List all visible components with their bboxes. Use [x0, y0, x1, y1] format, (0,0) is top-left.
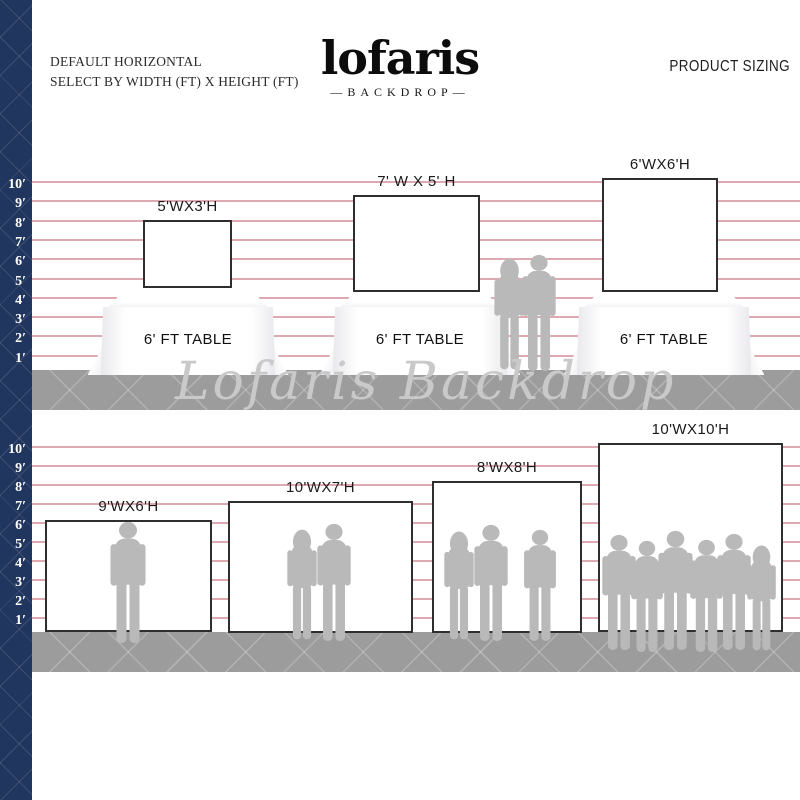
scale-mark-7ft: 7′ — [0, 235, 26, 251]
scale-mark-5ft: 5′ — [0, 274, 26, 290]
person-silhouette — [743, 544, 780, 652]
brand-logo-subtitle: —BACKDROP— — [290, 85, 510, 100]
scale-mark-5ft: 5′ — [0, 537, 26, 553]
backdrop-size-label: 5'WX3'H — [88, 198, 288, 216]
table-size-label: 6' FT TABLE — [101, 331, 276, 348]
brand-logo: lofaris —BACKDROP— — [290, 34, 510, 100]
scale-mark-10ft: 10′ — [0, 177, 26, 193]
backdrop-size-label: 9'WX6'H — [29, 498, 229, 516]
scale-mark-1ft: 1′ — [0, 613, 26, 629]
table-top-surface — [106, 294, 270, 309]
person-silhouette — [313, 523, 355, 641]
backdrop-7x5 — [353, 195, 480, 292]
person-silhouette — [470, 524, 512, 641]
page-title: PRODUCT SIZING — [656, 58, 790, 76]
scale-mark-8ft: 8′ — [0, 480, 26, 496]
scale-mark-7ft: 7′ — [0, 499, 26, 515]
table-top-surface — [582, 294, 746, 309]
scale-mark-10ft: 10′ — [0, 442, 26, 458]
orientation-note-line2: SELECT BY WIDTH (FT) X HEIGHT (FT) — [50, 72, 299, 92]
scale-mark-9ft: 9′ — [0, 196, 26, 212]
lofaris-product-sizing-chart: DEFAULT HORIZONTAL SELECT BY WIDTH (FT) … — [0, 0, 800, 800]
measuring-scale-bar — [0, 0, 32, 800]
scale-mark-8ft: 8′ — [0, 216, 26, 232]
table-size-label: 6' FT TABLE — [333, 331, 508, 348]
scale-mark-6ft: 6′ — [0, 518, 26, 534]
scale-mark-4ft: 4′ — [0, 556, 26, 572]
table-top-surface — [338, 294, 502, 309]
scale-mark-3ft: 3′ — [0, 575, 26, 591]
backdrop-6x6 — [602, 178, 718, 292]
scale-mark-2ft: 2′ — [0, 594, 26, 610]
backdrop-5x3 — [143, 220, 232, 288]
watermark-script: Lofaris Backdrop — [175, 356, 635, 408]
table-size-label: 6' FT TABLE — [577, 331, 752, 348]
scale-mark-6ft: 6′ — [0, 254, 26, 270]
scale-mark-1ft: 1′ — [0, 351, 26, 367]
backdrop-size-label: 8'WX8'H — [407, 459, 607, 477]
scale-mark-9ft: 9′ — [0, 461, 26, 477]
orientation-note: DEFAULT HORIZONTAL SELECT BY WIDTH (FT) … — [50, 52, 299, 93]
scale-mark-4ft: 4′ — [0, 293, 26, 309]
orientation-note-line1: DEFAULT HORIZONTAL — [50, 52, 299, 72]
backdrop-size-label: 6'WX6'H — [560, 156, 760, 174]
scale-mark-3ft: 3′ — [0, 312, 26, 328]
person-silhouette — [520, 529, 560, 641]
brand-logo-wordmark: lofaris — [290, 34, 510, 82]
backdrop-size-label: 10'WX10'H — [591, 421, 791, 439]
scale-mark-2ft: 2′ — [0, 331, 26, 347]
backdrop-size-label: 7' W X 5' H — [317, 173, 517, 191]
person-silhouette — [106, 521, 150, 643]
backdrop-size-label: 10'WX7'H — [221, 479, 421, 497]
